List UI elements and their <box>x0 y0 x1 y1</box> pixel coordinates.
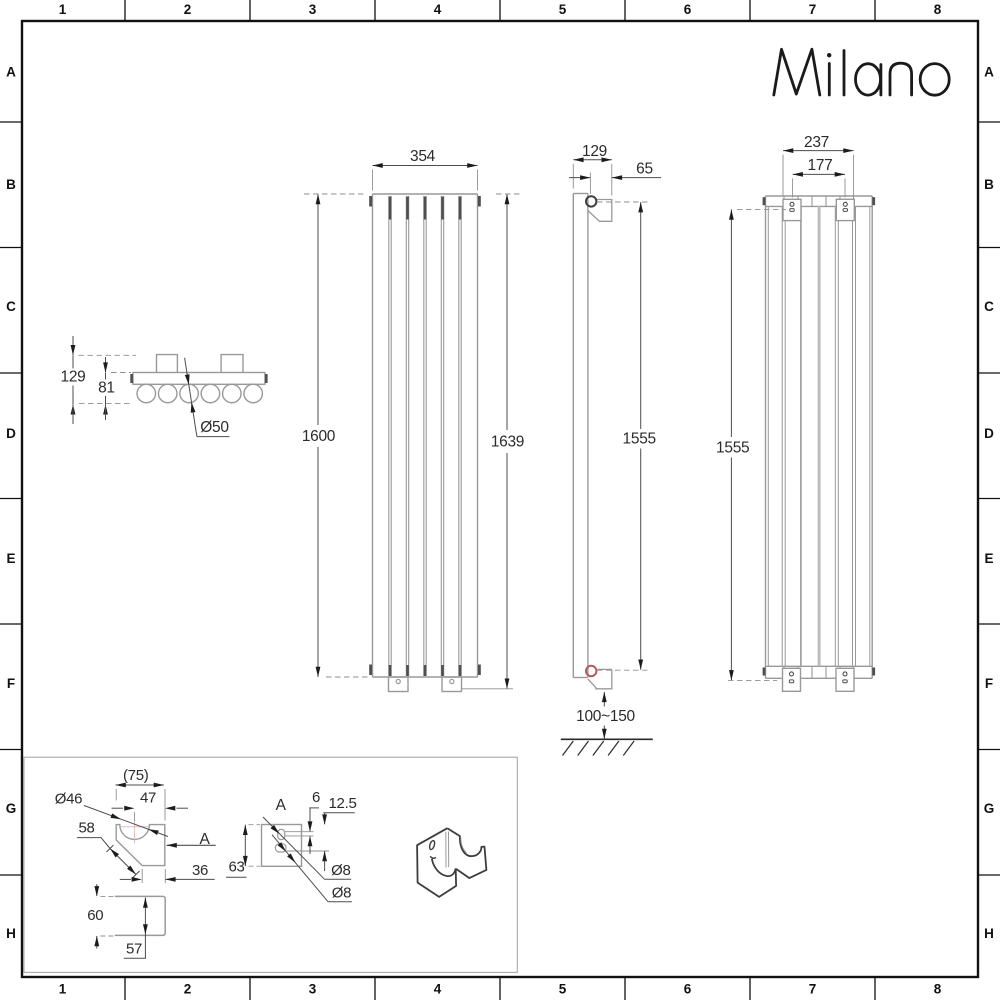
svg-text:D: D <box>984 426 994 441</box>
svg-text:7: 7 <box>809 982 817 997</box>
svg-text:A: A <box>984 65 994 80</box>
svg-text:1639: 1639 <box>491 434 524 451</box>
svg-text:2: 2 <box>184 982 192 997</box>
svg-text:12.5: 12.5 <box>329 795 357 812</box>
svg-text:3: 3 <box>309 982 317 997</box>
svg-text:C: C <box>6 299 16 314</box>
svg-text:100~150: 100~150 <box>576 708 635 725</box>
svg-text:3: 3 <box>309 2 317 17</box>
svg-text:60: 60 <box>87 907 103 924</box>
svg-text:Ø46: Ø46 <box>55 790 82 807</box>
svg-text:5: 5 <box>559 2 567 17</box>
svg-text:1: 1 <box>59 982 67 997</box>
svg-text:(75): (75) <box>123 767 149 784</box>
svg-text:4: 4 <box>434 2 442 17</box>
svg-text:81: 81 <box>98 380 115 397</box>
svg-text:B: B <box>6 177 16 192</box>
svg-text:Ø8: Ø8 <box>332 884 351 901</box>
svg-text:F: F <box>7 676 15 691</box>
svg-text:6: 6 <box>684 2 692 17</box>
svg-text:6: 6 <box>312 789 320 806</box>
svg-text:7: 7 <box>809 2 817 17</box>
svg-text:1600: 1600 <box>302 428 336 445</box>
svg-text:8: 8 <box>934 982 942 997</box>
svg-text:57: 57 <box>126 940 142 957</box>
svg-text:2: 2 <box>184 2 192 17</box>
svg-text:Ø8: Ø8 <box>331 862 350 879</box>
svg-text:129: 129 <box>61 368 86 385</box>
svg-text:E: E <box>984 551 993 566</box>
svg-text:5: 5 <box>559 982 567 997</box>
svg-text:36: 36 <box>192 862 208 879</box>
svg-text:65: 65 <box>636 160 653 177</box>
svg-text:B: B <box>984 177 994 192</box>
svg-text:47: 47 <box>140 790 156 807</box>
svg-text:C: C <box>984 299 994 314</box>
svg-text:177: 177 <box>808 157 833 174</box>
svg-text:G: G <box>6 801 17 816</box>
svg-text:E: E <box>6 551 15 566</box>
svg-text:G: G <box>984 801 995 816</box>
svg-text:1555: 1555 <box>716 439 749 456</box>
svg-text:6: 6 <box>684 982 692 997</box>
svg-text:Ø50: Ø50 <box>200 419 229 436</box>
svg-text:63: 63 <box>228 858 244 875</box>
svg-text:8: 8 <box>934 2 942 17</box>
svg-text:237: 237 <box>804 134 829 151</box>
svg-text:F: F <box>985 676 993 691</box>
svg-text:D: D <box>6 426 16 441</box>
svg-text:354: 354 <box>410 148 436 165</box>
svg-text:129: 129 <box>582 143 607 160</box>
svg-text:H: H <box>6 926 16 941</box>
svg-text:1: 1 <box>59 2 67 17</box>
svg-text:A: A <box>199 831 210 848</box>
svg-text:A: A <box>276 797 287 814</box>
svg-text:58: 58 <box>78 819 94 836</box>
svg-text:A: A <box>6 65 16 80</box>
svg-text:H: H <box>984 926 994 941</box>
svg-text:4: 4 <box>434 982 442 997</box>
svg-text:1555: 1555 <box>623 431 656 448</box>
